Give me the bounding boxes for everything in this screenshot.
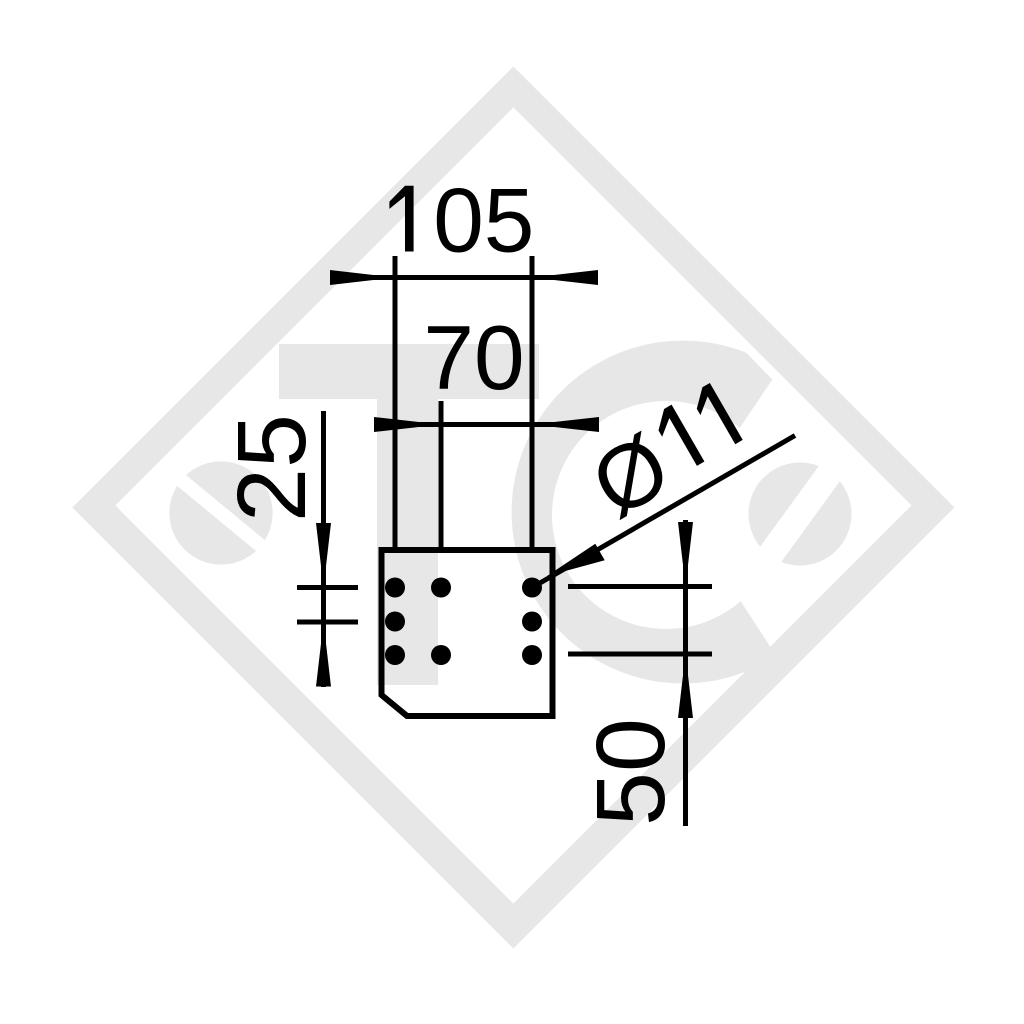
svg-text:70: 70 bbox=[423, 308, 524, 409]
svg-text:Ø: Ø bbox=[576, 416, 687, 538]
svg-text:05: 05 bbox=[433, 171, 534, 272]
svg-text:50: 50 bbox=[576, 718, 685, 826]
svg-text:25: 25 bbox=[217, 414, 326, 522]
